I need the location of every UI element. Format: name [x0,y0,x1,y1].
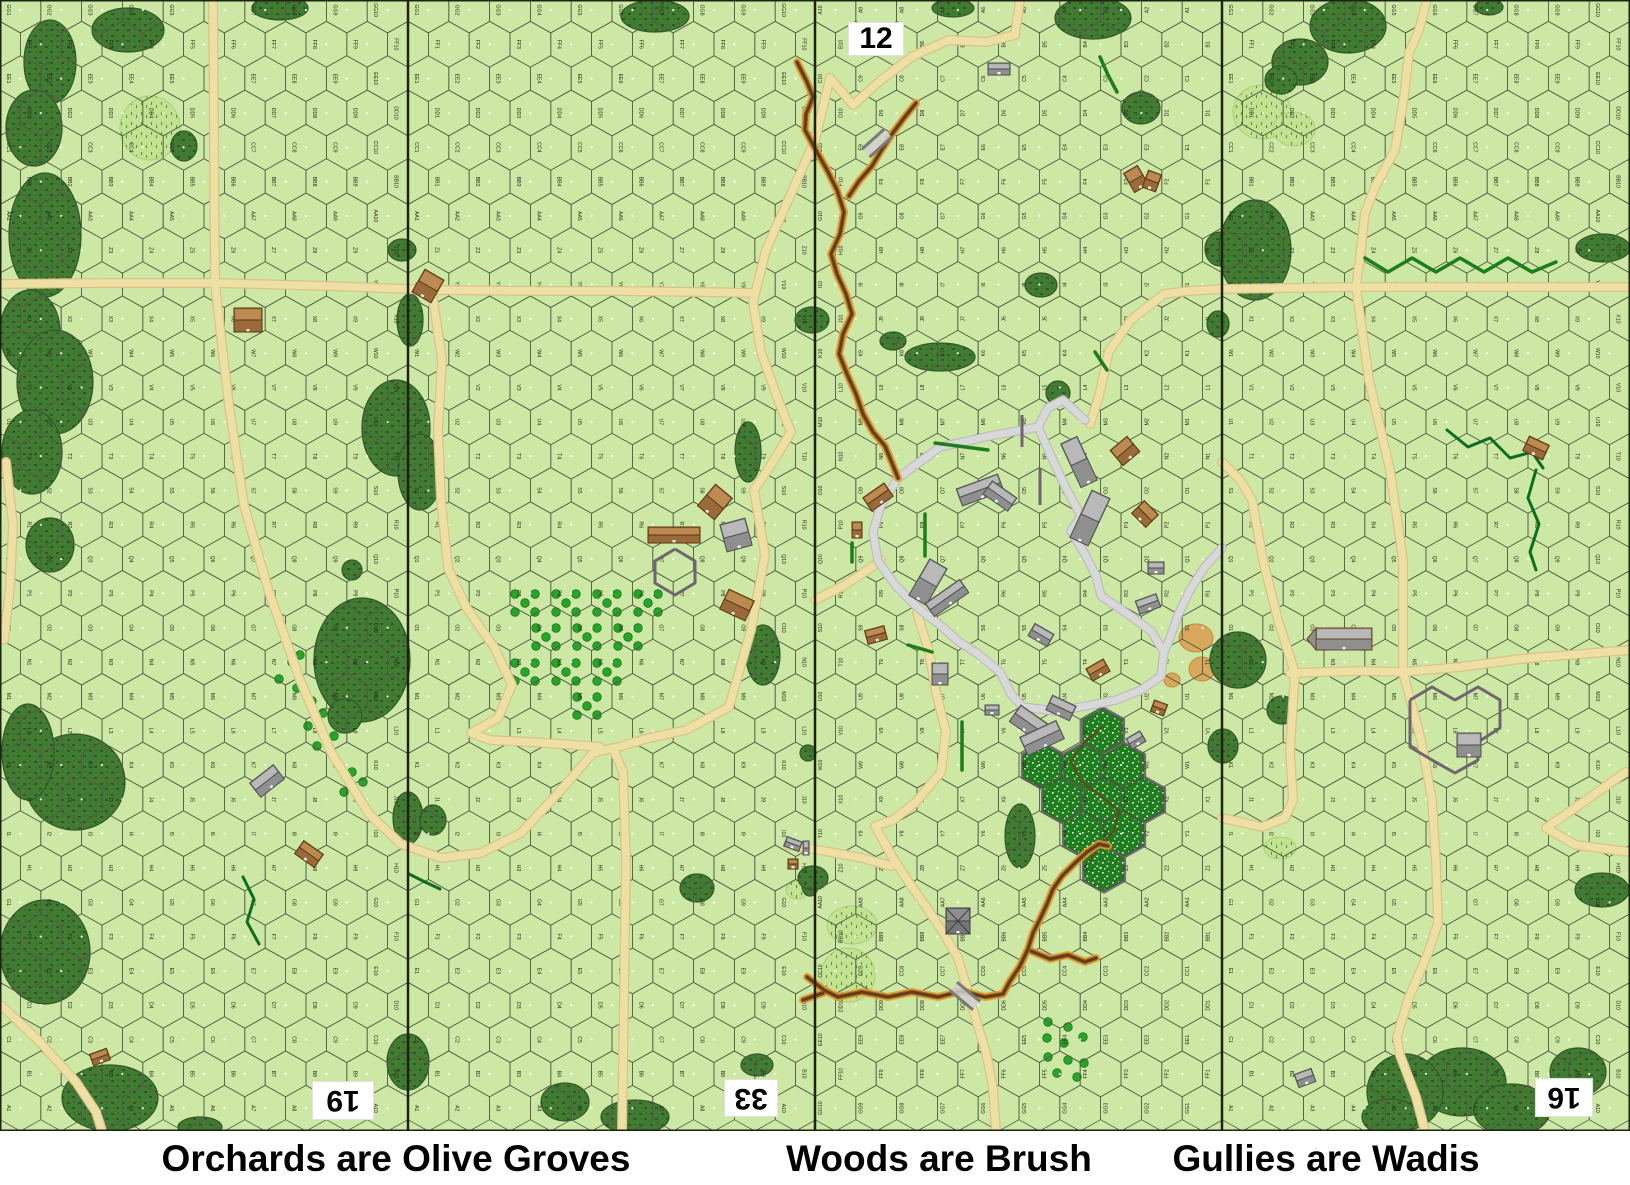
svg-text:E7: E7 [658,968,664,974]
caption-woods: Woods are Brush [786,1138,1092,1180]
svg-text:L10: L10 [1615,726,1621,735]
svg-text:AA7: AA7 [658,211,664,221]
svg-text:Z2: Z2 [1288,247,1294,253]
svg-text:DD2: DD2 [66,108,72,118]
svg-text:F10: F10 [393,932,399,941]
svg-text:GG5: GG5 [576,5,582,16]
svg-text:E1: E1 [1185,144,1191,150]
svg-text:O2: O2 [1268,624,1274,631]
svg-text:Y9: Y9 [739,281,745,287]
svg-text:I1: I1 [413,832,419,836]
svg-text:P6: P6 [1002,522,1008,528]
svg-text:T2: T2 [66,453,72,459]
svg-text:BB9: BB9 [760,177,766,187]
svg-text:CC10: CC10 [372,141,378,154]
svg-text:AA3: AA3 [1104,897,1110,907]
svg-text:BB3: BB3 [1124,932,1130,942]
svg-text:V6: V6 [1002,727,1008,733]
svg-text:J5: J5 [597,797,603,803]
svg-text:S6: S6 [209,487,215,493]
svg-text:AA7: AA7 [1472,211,1478,221]
svg-text:EE5: EE5 [1022,1035,1028,1045]
svg-text:FF10: FF10 [801,38,807,50]
svg-text:N7: N7 [961,453,967,460]
svg-text:GG9: GG9 [331,5,337,16]
svg-text:FF8: FF8 [920,1069,926,1078]
svg-text:K9: K9 [1553,762,1559,768]
svg-text:D3: D3 [107,1002,113,1009]
board-number-33: 33 [724,1079,778,1117]
svg-text:K2: K2 [1144,350,1150,356]
svg-text:B8: B8 [311,1071,317,1077]
svg-text:FF4: FF4 [1083,1069,1089,1078]
svg-text:F2: F2 [66,934,72,940]
svg-text:D10: D10 [838,108,844,118]
svg-text:T10: T10 [393,452,399,461]
svg-text:DD9: DD9 [760,108,766,118]
svg-text:J3: J3 [1329,797,1335,803]
svg-text:BB3: BB3 [107,177,113,187]
svg-text:R5: R5 [1042,590,1048,597]
svg-text:B5: B5 [189,1071,195,1077]
svg-text:N7: N7 [678,659,684,666]
svg-text:GG10: GG10 [372,3,378,17]
svg-text:CC8: CC8 [1513,142,1519,152]
svg-text:I5: I5 [1390,832,1396,836]
svg-text:B1: B1 [433,1071,439,1077]
svg-text:AA6: AA6 [981,897,987,907]
svg-text:AA10: AA10 [372,210,378,223]
svg-text:BB10: BB10 [1615,175,1621,188]
svg-text:L9: L9 [1574,728,1580,734]
svg-text:S9: S9 [1553,487,1559,493]
svg-text:V1: V1 [1247,384,1253,390]
svg-text:C7: C7 [250,1036,256,1043]
svg-text:P3: P3 [515,590,521,596]
svg-text:E6: E6 [1431,968,1437,974]
svg-text:K1: K1 [1185,350,1191,356]
svg-text:FF8: FF8 [719,40,725,49]
svg-text:K10: K10 [372,760,378,769]
svg-text:Q6: Q6 [1431,556,1437,563]
svg-text:W4: W4 [1063,761,1069,769]
svg-text:C7: C7 [940,75,946,82]
svg-text:B6: B6 [637,1071,643,1077]
svg-text:A8: A8 [1513,1105,1519,1111]
svg-text:O3: O3 [87,624,93,631]
svg-text:K5: K5 [1390,762,1396,768]
svg-text:M7: M7 [250,693,256,700]
svg-text:W3: W3 [495,349,501,357]
svg-text:EE3: EE3 [495,74,501,84]
svg-text:BB4: BB4 [1083,932,1089,942]
svg-text:U6: U6 [617,418,623,425]
svg-text:D8: D8 [920,110,926,117]
svg-text:M10: M10 [372,691,378,701]
svg-text:S2: S2 [454,487,460,493]
svg-text:M3: M3 [87,693,93,700]
svg-text:Z8: Z8 [1533,247,1539,253]
svg-text:C3: C3 [1309,1036,1315,1043]
svg-text:DD6: DD6 [637,108,643,118]
svg-text:CC1: CC1 [1227,142,1233,152]
svg-text:L9: L9 [760,728,766,734]
svg-text:P5: P5 [1042,522,1048,528]
svg-text:D9: D9 [879,110,885,117]
svg-text:R1: R1 [25,521,31,528]
svg-text:F9: F9 [352,934,358,940]
svg-text:S3: S3 [1309,487,1315,493]
svg-text:W3: W3 [87,349,93,357]
svg-text:T3: T3 [1329,453,1335,459]
svg-text:GG4: GG4 [535,5,541,16]
svg-text:H10: H10 [393,863,399,873]
svg-text:J10: J10 [1615,795,1621,803]
svg-text:J5: J5 [1042,316,1048,322]
svg-text:G8: G8 [900,212,906,219]
svg-text:T10: T10 [1615,452,1621,461]
svg-text:G7: G7 [1472,899,1478,906]
svg-text:D10: D10 [1615,1001,1621,1011]
svg-text:G4: G4 [1349,899,1355,906]
svg-text:A2: A2 [1268,1105,1274,1111]
svg-text:K7: K7 [658,762,664,768]
svg-text:O1: O1 [1227,624,1233,631]
svg-text:Z4: Z4 [1083,865,1089,871]
svg-text:C9: C9 [1553,1036,1559,1043]
svg-text:E1: E1 [413,968,419,974]
svg-text:H3: H3 [107,865,113,872]
svg-text:S3: S3 [1104,625,1110,631]
svg-text:F5: F5 [1411,934,1417,940]
svg-text:DD3: DD3 [1329,108,1335,118]
svg-text:X2: X2 [1288,316,1294,322]
svg-text:EE7: EE7 [250,74,256,84]
svg-text:AA3: AA3 [1309,211,1315,221]
svg-text:U10: U10 [372,417,378,427]
svg-text:M8: M8 [699,693,705,700]
svg-text:U1: U1 [413,418,419,425]
svg-text:A5: A5 [576,1105,582,1111]
svg-text:AA3: AA3 [495,211,501,221]
svg-text:GG4: GG4 [127,5,133,16]
svg-text:EE4: EE4 [1063,1035,1069,1045]
svg-text:O5: O5 [1390,624,1396,631]
svg-text:F4: F4 [148,934,154,940]
svg-text:U2: U2 [46,418,52,425]
svg-text:Z10: Z10 [801,246,807,255]
svg-text:Y5: Y5 [1022,830,1028,836]
svg-text:B2: B2 [1165,41,1171,47]
svg-text:Q6: Q6 [209,556,215,563]
svg-text:K2: K2 [46,762,52,768]
svg-text:E9: E9 [739,968,745,974]
svg-text:BB2: BB2 [474,177,480,187]
svg-text:V9: V9 [352,384,358,390]
svg-text:O8: O8 [699,624,705,631]
svg-text:V9: V9 [1574,384,1580,390]
svg-text:CC6: CC6 [1431,142,1437,152]
svg-text:B10: B10 [1615,1069,1621,1078]
svg-text:V7: V7 [270,384,276,390]
svg-text:Q2: Q2 [1268,556,1274,563]
svg-text:O5: O5 [168,624,174,631]
svg-text:A6: A6 [209,1105,215,1111]
svg-text:X2: X2 [66,316,72,322]
svg-text:O10: O10 [780,623,786,633]
svg-text:B5: B5 [1042,41,1048,47]
svg-text:X10: X10 [1615,314,1621,323]
svg-text:W4: W4 [127,349,133,357]
svg-text:J3: J3 [107,797,113,803]
svg-text:G4: G4 [1063,212,1069,219]
svg-text:N5: N5 [1411,659,1417,666]
svg-text:GG10: GG10 [818,1101,824,1115]
svg-text:L1: L1 [1247,728,1253,734]
svg-text:M10: M10 [818,417,824,427]
svg-text:P7: P7 [961,522,967,528]
svg-text:Z1: Z1 [433,247,439,253]
svg-text:P9: P9 [352,590,358,596]
svg-text:N6: N6 [637,659,643,666]
svg-text:O9: O9 [739,624,745,631]
svg-text:W5: W5 [168,349,174,357]
svg-text:FF6: FF6 [229,40,235,49]
svg-text:W9: W9 [859,761,865,769]
svg-text:N3: N3 [515,659,521,666]
svg-text:D2: D2 [1288,1002,1294,1009]
svg-text:I2: I2 [1144,282,1150,286]
svg-text:FF10: FF10 [393,38,399,50]
svg-text:H10: H10 [801,863,807,873]
svg-text:CC9: CC9 [1553,142,1559,152]
svg-text:C3: C3 [495,1036,501,1043]
svg-text:L7: L7 [270,728,276,734]
svg-text:FF2: FF2 [66,40,72,49]
svg-text:D10: D10 [393,1001,399,1011]
svg-text:BB4: BB4 [148,177,154,187]
svg-text:DD8: DD8 [311,108,317,118]
svg-text:G6: G6 [209,899,215,906]
svg-text:I4: I4 [127,832,133,836]
svg-text:S10: S10 [372,486,378,495]
svg-text:GG7: GG7 [940,1103,946,1114]
svg-text:BB10: BB10 [393,175,399,188]
svg-text:AA2: AA2 [46,211,52,221]
svg-text:P3: P3 [1124,522,1130,528]
svg-text:I4: I4 [1349,832,1355,836]
svg-text:FF10: FF10 [1615,38,1621,50]
svg-text:CC9: CC9 [331,142,337,152]
svg-text:H7: H7 [961,247,967,254]
svg-text:A8: A8 [291,1105,297,1111]
svg-text:H9: H9 [879,247,885,254]
svg-text:J6: J6 [1002,316,1008,322]
svg-text:E10: E10 [372,966,378,975]
svg-text:O7: O7 [250,624,256,631]
svg-text:W6: W6 [1431,349,1437,357]
svg-text:C9: C9 [739,1036,745,1043]
svg-text:U8: U8 [1513,418,1519,425]
svg-text:W9: W9 [1553,349,1559,357]
svg-text:L5: L5 [597,728,603,734]
svg-text:N2: N2 [66,659,72,666]
svg-text:G7: G7 [940,212,946,219]
svg-text:H2: H2 [474,865,480,872]
svg-text:F10: F10 [838,177,844,186]
svg-text:H6: H6 [229,865,235,872]
svg-text:P3: P3 [1329,590,1335,596]
svg-text:N3: N3 [107,659,113,666]
svg-text:U7: U7 [250,418,256,425]
svg-text:I10: I10 [780,830,786,837]
svg-text:BB7: BB7 [678,177,684,187]
svg-text:AA2: AA2 [1144,897,1150,907]
svg-text:S4: S4 [1063,625,1069,631]
svg-text:H4: H4 [1083,247,1089,254]
svg-text:D9: D9 [1574,1002,1580,1009]
svg-text:R3: R3 [107,521,113,528]
svg-text:EE10: EE10 [1594,72,1600,85]
svg-text:R8: R8 [311,521,317,528]
svg-text:X5: X5 [189,316,195,322]
svg-text:F3: F3 [107,934,113,940]
svg-text:W7: W7 [1472,349,1478,357]
svg-text:GG1: GG1 [5,5,11,16]
svg-text:GG7: GG7 [1472,5,1478,16]
svg-text:H3: H3 [515,865,521,872]
svg-text:A4: A4 [535,1105,541,1111]
svg-text:M7: M7 [658,693,664,700]
svg-text:CC7: CC7 [1472,142,1478,152]
svg-text:AA4: AA4 [535,211,541,221]
svg-text:Q9: Q9 [1553,556,1559,563]
svg-text:GG6: GG6 [617,5,623,16]
svg-text:I5: I5 [168,832,174,836]
svg-text:U8: U8 [900,693,906,700]
svg-text:P1: P1 [1247,590,1253,596]
svg-text:V4: V4 [148,384,154,390]
svg-text:E9: E9 [1553,968,1559,974]
svg-text:EE5: EE5 [1390,74,1396,84]
svg-text:Z7: Z7 [961,865,967,871]
svg-text:N8: N8 [719,659,725,666]
svg-text:G5: G5 [168,899,174,906]
svg-text:AA5: AA5 [576,211,582,221]
svg-text:O10: O10 [818,485,824,495]
svg-text:B3: B3 [515,1071,521,1077]
svg-text:H1: H1 [25,865,31,872]
svg-text:V10: V10 [838,726,844,735]
svg-text:F1: F1 [433,934,439,940]
svg-text:AA8: AA8 [699,211,705,221]
svg-text:N7: N7 [270,659,276,666]
svg-text:L9: L9 [352,728,358,734]
svg-text:Z3: Z3 [515,247,521,253]
svg-text:GG6: GG6 [1431,5,1437,16]
svg-text:FF4: FF4 [1370,40,1376,49]
svg-text:V1: V1 [1206,727,1212,733]
svg-text:F7: F7 [1492,934,1498,940]
svg-text:E1: E1 [1227,968,1233,974]
svg-text:I3: I3 [1309,832,1315,836]
svg-text:AA2: AA2 [454,211,460,221]
svg-text:C4: C4 [1349,1036,1355,1043]
svg-text:A5: A5 [168,1105,174,1111]
svg-text:E4: E4 [535,968,541,974]
svg-text:N3: N3 [1329,659,1335,666]
svg-text:R10: R10 [1615,520,1621,530]
svg-text:P4: P4 [556,590,562,596]
svg-text:C8: C8 [900,75,906,82]
svg-text:O3: O3 [1104,487,1110,494]
svg-text:DD4: DD4 [556,108,562,118]
svg-text:Z9: Z9 [352,247,358,253]
svg-text:GG5: GG5 [1390,5,1396,16]
svg-text:Z1: Z1 [25,247,31,253]
svg-text:V5: V5 [1411,384,1417,390]
svg-text:R9: R9 [879,590,885,597]
svg-text:R10: R10 [801,520,807,530]
svg-text:CC4: CC4 [1349,142,1355,152]
svg-text:M2: M2 [1268,693,1274,700]
svg-text:M6: M6 [209,693,215,700]
svg-text:F6: F6 [1002,178,1008,184]
svg-text:J7: J7 [1492,797,1498,803]
svg-text:DD2: DD2 [1288,108,1294,118]
svg-text:T4: T4 [1083,659,1089,665]
svg-text:I8: I8 [900,282,906,286]
svg-text:W2: W2 [46,349,52,357]
svg-text:W10: W10 [818,760,824,771]
svg-text:BB1: BB1 [1247,177,1253,187]
svg-text:H10: H10 [838,245,844,255]
svg-text:L5: L5 [1042,385,1048,391]
svg-text:R1: R1 [1206,590,1212,597]
svg-text:Q4: Q4 [535,556,541,563]
svg-text:EE8: EE8 [1513,74,1519,84]
svg-text:BB3: BB3 [515,177,521,187]
svg-text:C6: C6 [1431,1036,1437,1043]
svg-text:B9: B9 [760,1071,766,1077]
svg-text:T5: T5 [189,453,195,459]
svg-text:Z10: Z10 [1615,246,1621,255]
svg-text:A7: A7 [1472,1105,1478,1111]
game-map[interactable]: GG1GG2GG3GG4GG5GG6GG7GG8GG9GG10FF1FF2FF3… [0,0,1630,1131]
svg-text:T7: T7 [961,659,967,665]
svg-text:H2: H2 [66,865,72,872]
svg-text:EE1: EE1 [5,74,11,84]
svg-text:D5: D5 [597,1002,603,1009]
svg-text:A3: A3 [1309,1105,1315,1111]
svg-text:A10: A10 [1594,1104,1600,1113]
svg-text:D5: D5 [1042,110,1048,117]
svg-text:DD5: DD5 [597,108,603,118]
svg-text:G2: G2 [454,899,460,906]
svg-text:EE7: EE7 [1472,74,1478,84]
svg-text:Q9: Q9 [331,556,337,563]
svg-text:U9: U9 [1553,418,1559,425]
svg-text:J7: J7 [961,316,967,322]
svg-text:P1: P1 [433,590,439,596]
svg-text:D8: D8 [719,1002,725,1009]
svg-text:BB8: BB8 [719,177,725,187]
svg-text:DD10: DD10 [393,106,399,119]
svg-text:J7: J7 [270,797,276,803]
svg-text:B8: B8 [719,1071,725,1077]
svg-text:AA8: AA8 [1513,211,1519,221]
svg-text:T5: T5 [597,453,603,459]
